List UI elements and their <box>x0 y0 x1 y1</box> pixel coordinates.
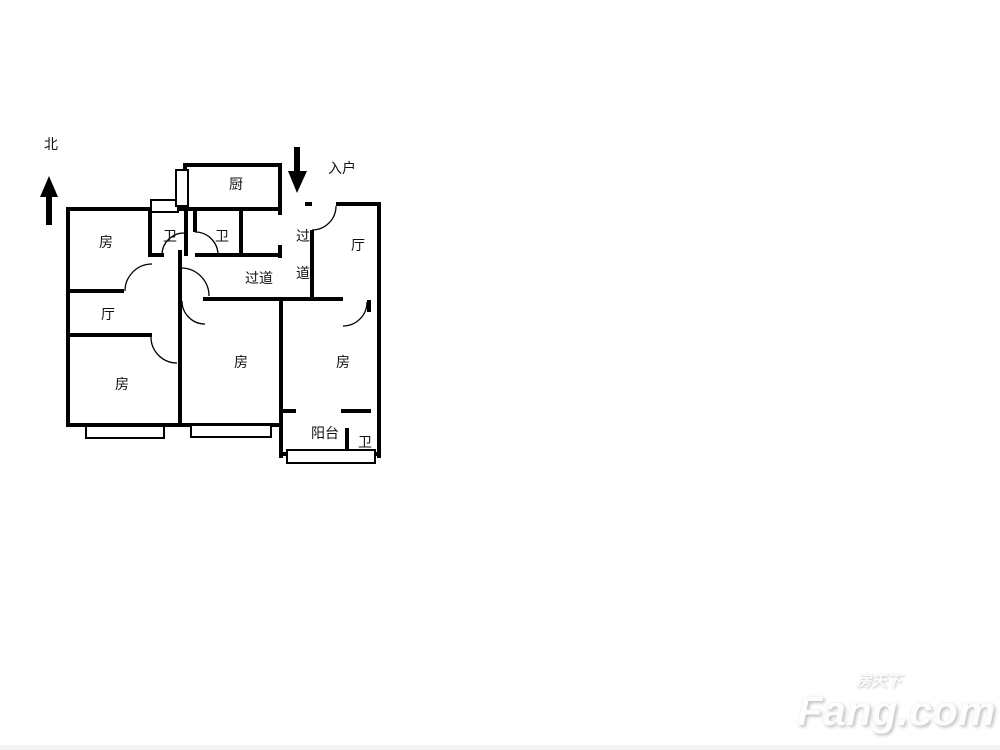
wall-entry-corridor <box>310 230 314 300</box>
bath-1-label: 卫 <box>163 228 177 244</box>
balcony-label: 阳台 <box>311 425 339 441</box>
corridor-char-2: 道 <box>296 265 310 281</box>
wall-bath1-right <box>184 207 188 256</box>
bath-2-label: 卫 <box>215 228 229 244</box>
corridor-char-1: 过 <box>296 228 310 244</box>
window-kitchen-left <box>176 170 188 206</box>
door-nw-room <box>125 264 152 291</box>
bedroom-s-label: 房 <box>234 354 248 370</box>
wall-bath2-left-upper <box>193 207 197 232</box>
watermark-en-text: Fang.com <box>790 690 1000 732</box>
wall-corridor-bottom <box>203 297 343 301</box>
bath-3-label: 卫 <box>358 434 372 450</box>
wall-outer-left <box>66 207 70 427</box>
wall-kitchen-top <box>183 163 282 167</box>
north-arrow-head <box>40 176 58 197</box>
door-entry-hall <box>312 206 336 230</box>
wall-east-top-a <box>305 202 312 206</box>
north-label: 北 <box>44 136 58 152</box>
wall-kitchen-right-upper <box>278 163 282 215</box>
wall-bath2-right <box>239 207 243 257</box>
wall-balcony-top-right <box>341 409 371 413</box>
bottom-edge-strip <box>0 745 1000 750</box>
kitchen-label: 厨 <box>229 176 243 192</box>
wall-se-room-left <box>279 300 283 458</box>
door-s-room <box>182 301 205 324</box>
wall-nook-bottom <box>195 253 282 257</box>
door-se-room <box>343 302 367 326</box>
window-balcony <box>287 450 375 463</box>
north-arrow-shaft <box>46 195 52 225</box>
fang-watermark: 房天下 Fang.com <box>790 674 1000 732</box>
entry-label: 入户 <box>328 160 356 176</box>
window-sw-room <box>86 426 164 438</box>
corridor-label: 过道 <box>245 270 273 286</box>
hall-west-label: 厅 <box>101 306 115 322</box>
wall-outer-right <box>377 202 381 458</box>
floor-plan-svg: 北入户厨卫卫房厅过道过道厅房房房阳台卫 <box>0 0 1000 750</box>
window-s-room <box>191 425 271 437</box>
wall-bath1-left <box>148 207 152 257</box>
wall-se-door-stub <box>367 300 371 312</box>
bedroom-sw-label: 房 <box>115 376 129 392</box>
wall-balcony-top-left <box>283 409 296 413</box>
hall-east-label: 厅 <box>351 237 365 253</box>
wall-central-vertical <box>178 250 182 427</box>
wall-nw-room-bottom <box>66 289 124 293</box>
bedroom-se-label: 房 <box>336 354 350 370</box>
door-corridor <box>181 268 209 296</box>
entry-arrow-head <box>288 171 307 193</box>
door-sw-room <box>151 337 177 363</box>
bedroom-nw-label: 房 <box>99 234 113 250</box>
window-bath1-top <box>151 200 178 212</box>
wall-hall-west-bottom <box>66 333 152 337</box>
entry-arrow-shaft <box>294 147 300 174</box>
floorplan-page: 北入户厨卫卫房厅过道过道厅房房房阳台卫 房天下 Fang.com <box>0 0 1000 750</box>
wall-east-top-b <box>336 202 381 206</box>
